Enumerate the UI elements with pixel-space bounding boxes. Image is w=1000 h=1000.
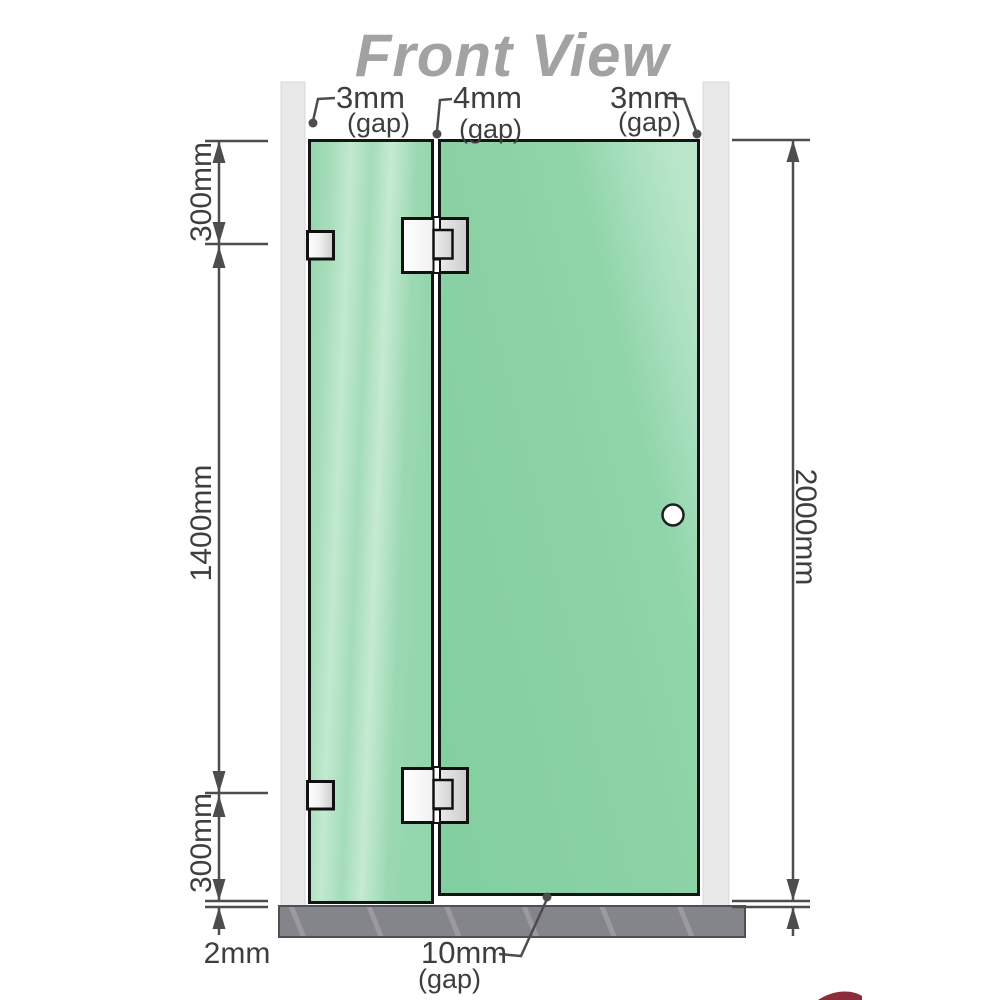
gap-label-top-middle: 4mm	[453, 80, 522, 115]
hinge-bottom	[403, 767, 468, 823]
dim-total-height: 2000mm	[789, 469, 822, 586]
front-view-diagram: Front View	[0, 0, 1000, 1000]
floor-bar	[279, 906, 745, 937]
door-glass-panel	[440, 141, 699, 895]
right-wall-channel	[703, 82, 729, 908]
logo-sliver	[818, 991, 862, 1000]
door-handle	[663, 505, 684, 526]
diagram-canvas: Front View	[0, 0, 1000, 1000]
gap-unit-top-middle: (gap)	[459, 114, 522, 144]
gap-unit-top-left: (gap)	[347, 108, 410, 138]
left-wall-channel	[281, 82, 305, 908]
dim-left-top: 300mm	[185, 142, 218, 242]
gap-unit-bottom: (gap)	[418, 964, 481, 994]
gap-unit-top-right: (gap)	[618, 107, 681, 137]
hinge-top	[403, 217, 468, 273]
wall-bracket-bottom	[308, 782, 334, 810]
dim-left-middle: 1400mm	[185, 465, 218, 582]
wall-bracket-top	[308, 232, 334, 260]
dim-floor-clearance: 2mm	[204, 937, 271, 970]
page-title: Front View	[355, 22, 672, 89]
dim-left-bottom: 300mm	[185, 793, 218, 893]
